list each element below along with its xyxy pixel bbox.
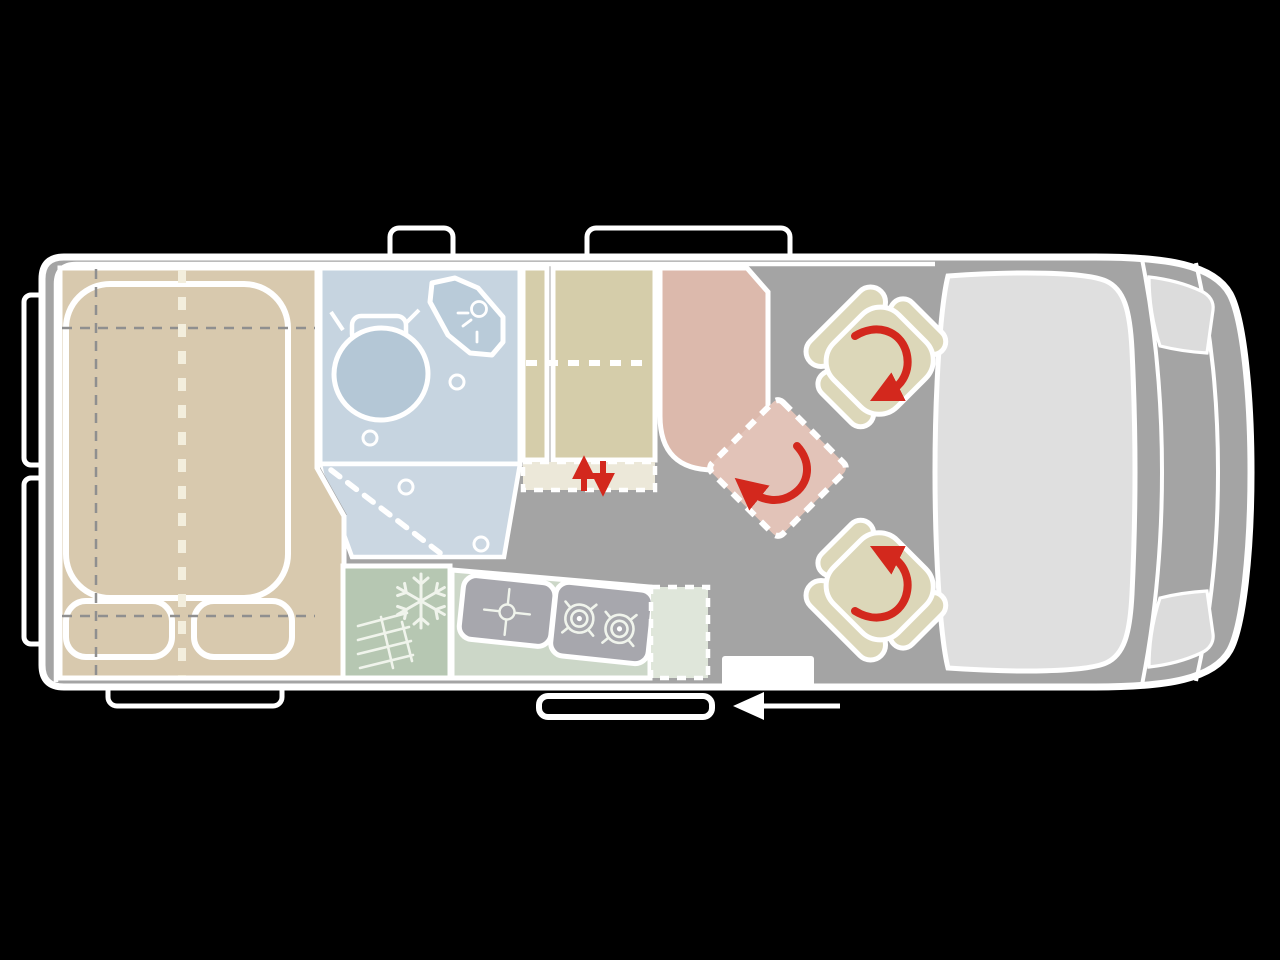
stove — [549, 581, 654, 665]
counter-extension-flap — [651, 587, 708, 678]
sliding-door-rail — [539, 696, 712, 717]
bathroom-swivel-floor — [320, 464, 520, 557]
windshield — [935, 273, 1135, 671]
sink — [458, 574, 556, 647]
camper-floorplan-svg — [0, 0, 1280, 960]
fridge — [343, 566, 450, 678]
wardrobe-lift-drawer — [523, 462, 655, 490]
entry-step — [722, 656, 814, 687]
page-background — [0, 0, 1280, 960]
